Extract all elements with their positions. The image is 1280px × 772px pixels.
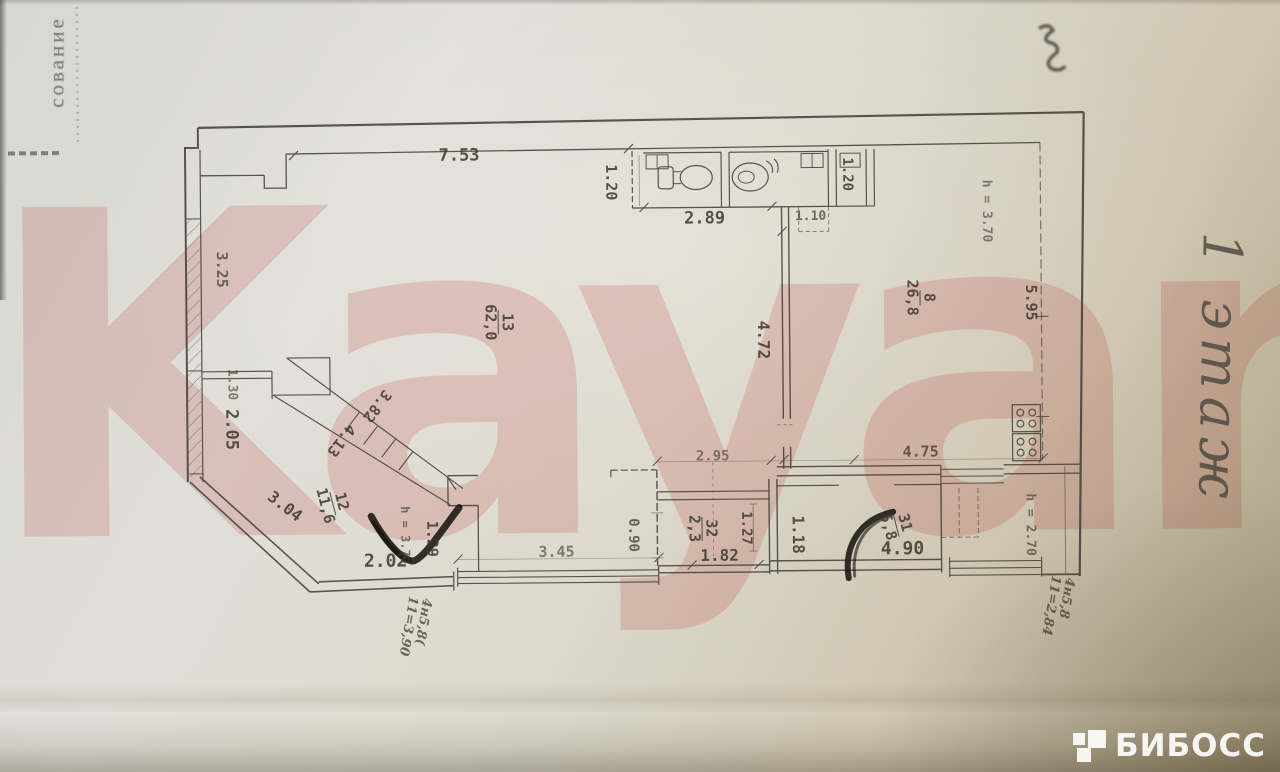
- dimension-label: 1.82: [700, 546, 739, 565]
- photo-edge-shadow: [0, 0, 7, 300]
- dimension-label: 3.45: [538, 543, 574, 561]
- room-number-area-label: 322,3: [686, 515, 719, 542]
- dimension-label: 3.82: [359, 386, 395, 426]
- dimension-label: 1.20: [839, 157, 855, 191]
- dimension-label: 1.29: [423, 521, 441, 557]
- room-number-area-label: 1362,0: [482, 304, 515, 340]
- dimension-label: 1.27: [738, 511, 754, 545]
- bibboss-logo-icon: [1073, 729, 1107, 763]
- room-number-area-label: 1211,6: [313, 482, 354, 525]
- dimension-label: 7.53: [438, 145, 479, 165]
- dimension-label: 4.13: [323, 421, 359, 461]
- dimension-label: 1.20: [602, 164, 620, 200]
- scanned-floorplan-photo: Kayan: [0, 0, 1280, 772]
- handwritten-annotation: 4н5,8(11=3,90: [395, 595, 433, 660]
- dimension-label: 2.02: [364, 551, 408, 572]
- dimension-label: 3.25: [213, 252, 231, 288]
- dimension-label: h = 3.70: [979, 180, 995, 243]
- dimension-label: 1.18: [789, 515, 808, 554]
- photo-top-shadow: [0, 0, 1280, 5]
- dimension-label: 4.75: [902, 442, 938, 460]
- dimension-label: 2.89: [684, 208, 725, 228]
- dimension-label: 4.72: [754, 321, 773, 360]
- bibboss-logo-text: БИБОСС: [1115, 728, 1266, 764]
- dimension-label: 0.90: [625, 518, 641, 552]
- dimension-label: 3.04: [264, 487, 306, 526]
- dimension-label: 1.30: [224, 369, 239, 400]
- dimension-label: 1.10: [795, 209, 826, 224]
- dimension-label: 5.95: [1022, 284, 1040, 320]
- room-number-area-label: 826,8: [904, 279, 937, 315]
- bibboss-logo: БИБОСС: [1073, 728, 1266, 764]
- corner-vignette: [860, 472, 1280, 772]
- dimension-label: 2.05: [221, 409, 241, 450]
- approval-stamp-text: сование: [45, 16, 70, 108]
- dimension-label: 2.95: [696, 448, 730, 464]
